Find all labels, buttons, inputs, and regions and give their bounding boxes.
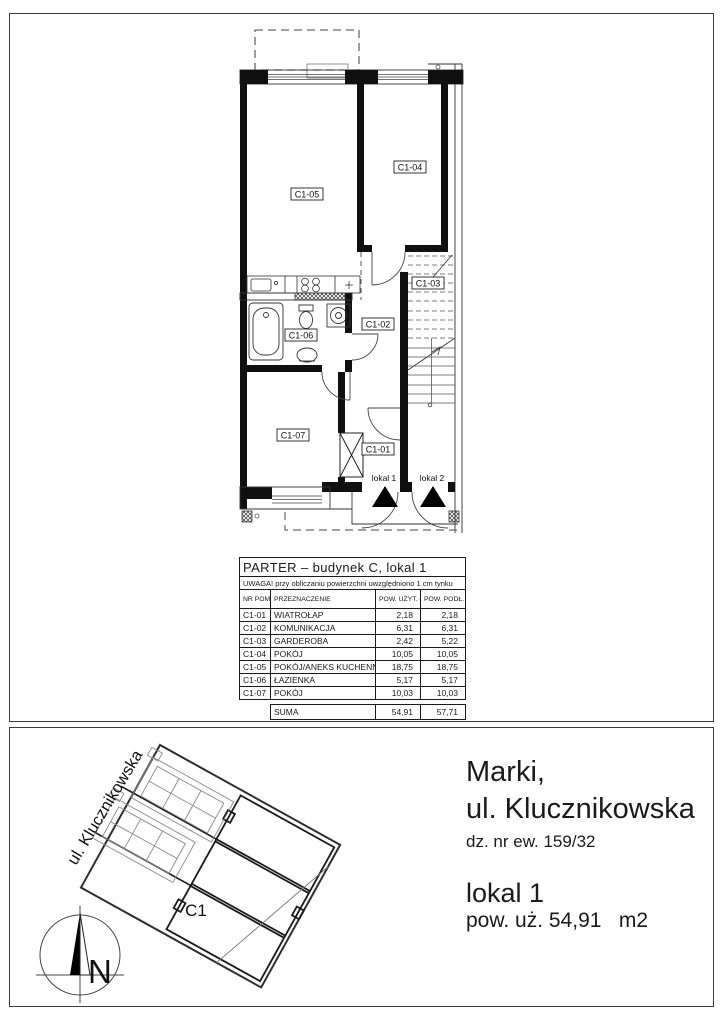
compass-rose: N (36, 906, 124, 1003)
svg-text:C1-04: C1-04 (398, 163, 423, 173)
drawing-sheet: C1-05 C1-04 C1-03 C1-02 C1-06 C1-07 C1-0… (0, 0, 725, 1024)
hatch-corner-left (242, 511, 252, 522)
street-name-label: ul. Klucznikowska (64, 746, 147, 868)
svg-text:C1-06: C1-06 (289, 331, 314, 341)
shaft-x (340, 433, 363, 477)
table-header-row: NR POM. PRZEZNACZENIE POW. UŻYT. (m²) PO… (240, 590, 466, 609)
survey-point (255, 514, 259, 518)
col-header-podl: POW. PODŁ. (m²) (421, 590, 466, 609)
bathtub-icon (249, 303, 283, 360)
table-row: C1-01WIATROŁAP 2,182,18 (240, 609, 466, 622)
svg-text:C1-01: C1-01 (366, 445, 391, 455)
north-label: N (88, 953, 112, 990)
hatched-wall (295, 293, 345, 300)
table-row: C1-03GARDEROBA 2,425,22 (240, 635, 466, 648)
wall-marker (436, 65, 440, 69)
partition-lines (240, 293, 352, 509)
unit-title: lokal 1 (466, 878, 695, 908)
table-row: C1-06ŁAZIENKA 5,175,17 (240, 674, 466, 687)
svg-text:C1-03: C1-03 (416, 279, 441, 289)
entrance-label-lokal-2: lokal 2 (420, 473, 445, 483)
room-label-c1-07: C1-07 (277, 429, 309, 441)
sum-uzyt: 54,91 (376, 705, 421, 720)
building-c-outline (163, 793, 338, 983)
svg-text:C1-02: C1-02 (366, 320, 391, 330)
entrance-triangle-lokal-1 (372, 486, 398, 507)
site-building-label: C1 (185, 901, 207, 920)
table-row: C1-07POKÓJ 10,0310,03 (240, 687, 466, 700)
table-title: PARTER – budynek C, lokal 1 (240, 558, 466, 577)
toilet-icon (299, 305, 313, 329)
room-label-c1-05: C1-05 (291, 188, 323, 200)
hatch-corner-right (449, 511, 459, 522)
entry-step (307, 64, 348, 78)
address-city: Marki, (466, 754, 695, 791)
walls (240, 70, 463, 509)
unit-area: pow. uż. 54,91 m2 (466, 908, 695, 934)
svg-text:C1-07: C1-07 (281, 431, 306, 441)
room-label-c1-02: C1-02 (362, 318, 394, 330)
sum-label: SUMA (271, 705, 376, 720)
kitchen-counter (247, 276, 360, 293)
room-label-c1-03: C1-03 (412, 277, 444, 289)
col-header-name: PRZEZNACZENIE (271, 590, 376, 609)
svg-text:C1-05: C1-05 (295, 190, 320, 200)
sum-podl: 57,71 (421, 705, 466, 720)
table-row: C1-02KOMUNIKACJA 6,316,31 (240, 622, 466, 635)
site-buildings (63, 735, 340, 987)
north-needle (70, 913, 80, 975)
address-street: ul. Klucznikowska (466, 791, 695, 828)
address-plot-number: dz. nr ew. 159/32 (466, 831, 695, 853)
col-header-nr: NR POM. (240, 590, 271, 609)
col-header-uzyt: POW. UŻYT. (m²) (376, 590, 421, 609)
room-label-c1-01: C1-01 (362, 443, 394, 455)
tap-symbol (345, 281, 353, 289)
sum-row: SUMA 54,91 57,71 (270, 704, 466, 720)
table-row: C1-04POKÓJ 10,0510,05 (240, 648, 466, 661)
room-label-c1-06: C1-06 (285, 329, 317, 341)
address-block: Marki, ul. Klucznikowska dz. nr ew. 159/… (466, 754, 695, 934)
room-schedule: PARTER – budynek C, lokal 1 UWAGA! przy … (239, 557, 467, 720)
washbasin-icon (297, 348, 317, 362)
table-note: UWAGA! przy obliczaniu powierzchni uwzgl… (240, 577, 466, 590)
table-row: C1-05POKÓJ/ANEKS KUCHENNY 18,7518,75 (240, 661, 466, 674)
room-label-c1-04: C1-04 (394, 161, 426, 173)
entrance-triangle-lokal-2 (420, 486, 446, 507)
entrance-label-lokal-1: lokal 1 (372, 473, 397, 483)
floor-plan: C1-05 C1-04 C1-03 C1-02 C1-06 C1-07 C1-0… (228, 22, 476, 544)
stove-icon (302, 278, 320, 292)
kitchen-sink-icon (251, 279, 271, 291)
site-plan: C1 ul. Klucznikowska N (25, 733, 355, 1005)
